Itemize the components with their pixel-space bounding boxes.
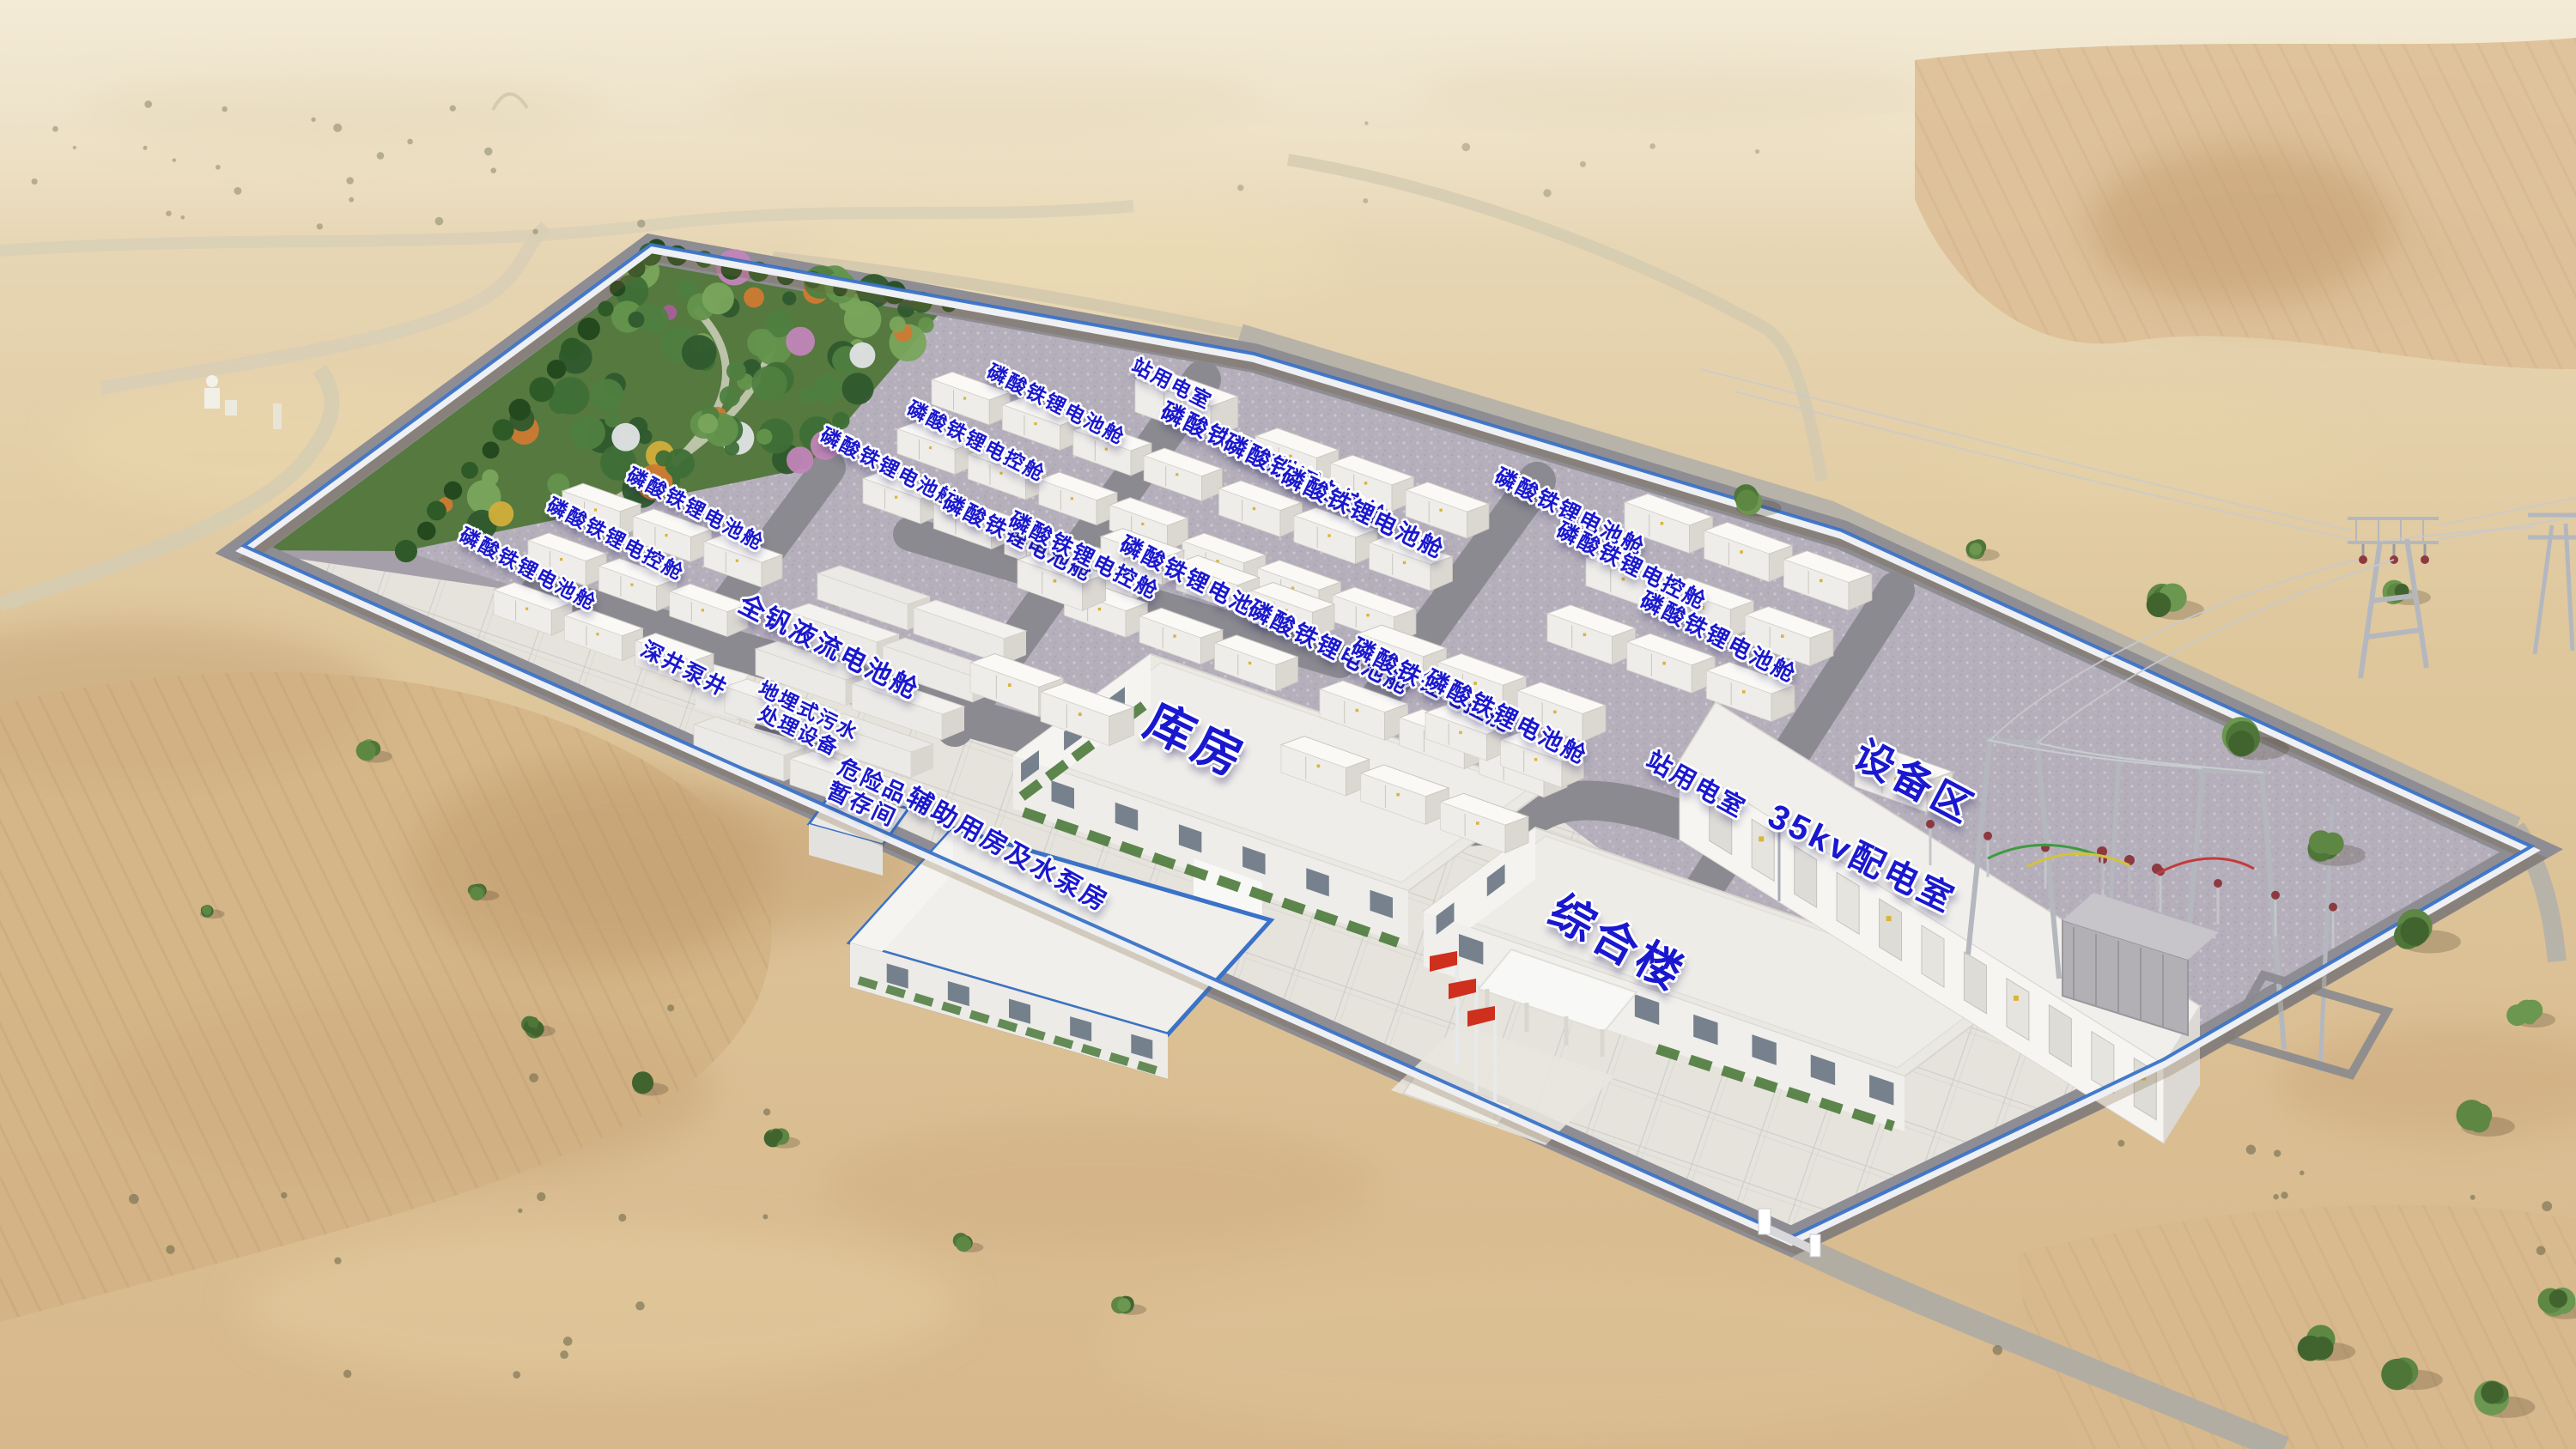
label-auxiliary-1: 辅助用房及水泵房 [901, 783, 1113, 919]
label-battery-cabin-3: 磷酸铁锂电池舱 [623, 464, 769, 555]
label-deep-well-1: 深井泵井 [637, 637, 732, 701]
label-battery-cabin-1: 磷酸铁锂电池舱 [983, 360, 1129, 449]
label-office-1: 综合楼 [1540, 886, 1694, 1002]
label-battery-cabin-9: 磷酸铁锂电池舱 [1243, 596, 1414, 700]
label-station-power-room-2: 站用电室 [1641, 747, 1751, 825]
label-battery-cabin-6: 磷酸铁锂电池舱 [1277, 463, 1449, 565]
label-battery-cabin-2: 磷酸铁锂电池舱 [817, 423, 963, 512]
aerial-site-rendering: 站用电室磷酸铁锂电池舱磷酸铁锂电控舱磷酸铁锂电池舱磷酸铁锂电池舱磷酸铁锂电控舱磷… [0, 0, 2576, 1449]
label-battery-cabin-12: 磷酸铁锂电池舱 [1636, 587, 1801, 688]
label-battery-cabin-10: 磷酸铁锂电池舱 [1420, 665, 1591, 770]
label-hazmat-1: 危险品 暂存间 [823, 755, 912, 832]
label-battery-cabin-4: 磷酸铁锂电池舱 [456, 524, 601, 615]
labels-layer: 站用电室磷酸铁锂电池舱磷酸铁锂电控舱磷酸铁锂电池舱磷酸铁锂电池舱磷酸铁锂电控舱磷… [0, 0, 2576, 1449]
label-equipment-area-1: 设备区 [1847, 731, 1984, 833]
label-warehouse-1: 库房 [1137, 693, 1256, 788]
label-control-cabin-1: 磷酸铁锂电控舱 [903, 397, 1049, 486]
label-control-cabin-2: 磷酸铁锂电控舱 [544, 494, 689, 585]
label-sewage-1: 地埋式污水 处理设备 [745, 677, 863, 766]
